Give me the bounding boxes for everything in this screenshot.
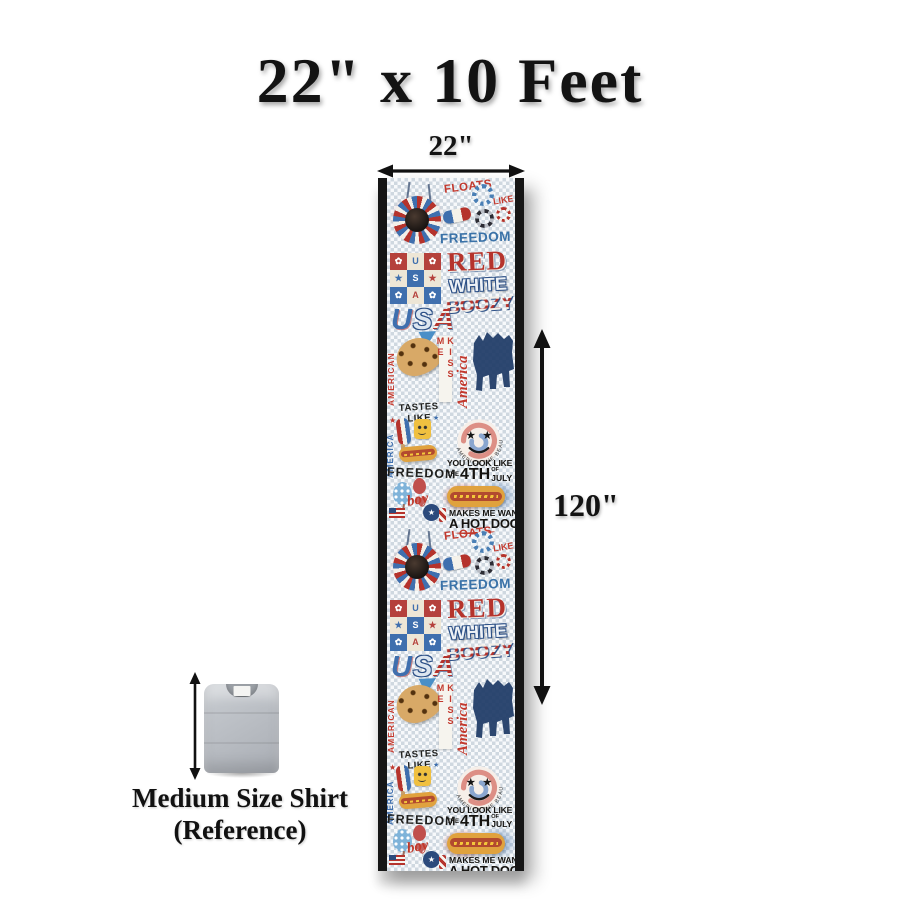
- a-hot-dog-text: A HOT DOG: [449, 863, 515, 872]
- shirt-body: [204, 684, 279, 773]
- checker-letter: U: [407, 253, 424, 270]
- star-icon: ★: [424, 270, 441, 287]
- usa-checker-block: ✿ U ✿ ★ S ★ ✿ A ✿: [390, 600, 441, 651]
- sunflower-center: [405, 555, 429, 579]
- like-text: LIKE: [492, 193, 514, 206]
- shirt-neck-label: [234, 686, 251, 696]
- reference-shirt-image: [202, 678, 282, 780]
- usa-letter: A: [433, 651, 455, 683]
- flag-sunflower-graphic: [389, 531, 447, 597]
- pool-float-icon: [496, 207, 511, 222]
- daisy-icon: ✿: [424, 600, 441, 617]
- product-size-diagram: 22" x 10 Feet 22" FLOATS LIKE: [0, 0, 900, 900]
- reference-caption-line2: (Reference): [99, 814, 381, 846]
- boozy-text: BOOZY: [445, 294, 514, 318]
- pool-float-icon: [496, 554, 511, 569]
- america-script-text: America: [455, 702, 472, 755]
- hot-dog-icon: [447, 833, 505, 854]
- daisy-icon: ✿: [390, 287, 407, 304]
- checker-letter: A: [407, 287, 424, 304]
- daisy-icon: ✿: [424, 287, 441, 304]
- the-text: THE: [447, 819, 459, 825]
- smiley-can-icon: [414, 419, 431, 439]
- sparkle-icon: ★: [433, 414, 439, 422]
- pool-float-icon: [475, 556, 494, 575]
- usa-letter: A: [433, 304, 455, 336]
- height-dimension-label: 120": [553, 487, 619, 524]
- american-vertical-text: AMERICAN: [387, 699, 396, 753]
- pool-float-icon: [475, 209, 494, 228]
- hot-dog-icon: [398, 444, 437, 462]
- fabric-roll: FLOATS LIKE FREEDOM ✿ U ✿ ★ S ★ ✿ A ✿: [378, 178, 524, 871]
- fourth-of-july-block: YOU LOOK LIKE THE 4TH OF JULY MAKES ME W…: [445, 458, 515, 524]
- usa-letter: U: [391, 304, 413, 336]
- fourth-of-july-block: YOU LOOK LIKE THE 4TH OF JULY MAKES ME W…: [445, 805, 515, 871]
- star-eye-icon: ★: [482, 430, 492, 442]
- height-arrow-icon: [529, 328, 555, 706]
- daisy-icon: ✿: [390, 634, 407, 651]
- checker-letter: U: [407, 600, 424, 617]
- usa-letter: U: [391, 651, 413, 683]
- kiss-me-text: KISS ME: [439, 683, 452, 749]
- star-eye-icon: ★: [482, 776, 492, 788]
- daisy-icon: ✿: [390, 600, 407, 617]
- us-flag-icon: [389, 855, 405, 865]
- star-icon: ★: [424, 617, 441, 634]
- smiley-can-icon: [414, 766, 431, 786]
- pool-float-icon: [472, 531, 494, 553]
- daisy-icon: ✿: [390, 253, 407, 270]
- usa-checker-block: ✿ U ✿ ★ S ★ ✿ A ✿: [390, 253, 441, 304]
- hot-dog-icon: [447, 486, 505, 507]
- fabric-roll-print: FLOATS LIKE FREEDOM ✿ U ✿ ★ S ★ ✿ A ✿: [387, 178, 515, 871]
- star-patch-icon: ★: [423, 504, 440, 521]
- sunflower-center: [405, 208, 429, 232]
- checker-letter: A: [407, 634, 424, 651]
- red-text: RED: [447, 593, 508, 622]
- pattern-tile: FLOATS LIKE FREEDOM ✿ U ✿ ★ S ★ ✿ A ✿: [387, 525, 515, 872]
- page-title: 22" x 10 Feet: [0, 44, 900, 118]
- star-patch-icon: ★: [423, 851, 440, 868]
- shirt-fold-line: [204, 712, 279, 714]
- boozy-text: BOOZY: [445, 640, 514, 664]
- red-text: RED: [447, 247, 508, 276]
- star-eye-icon: ★: [466, 776, 476, 788]
- wild-horses-silhouette: [471, 673, 515, 743]
- shirt-fold-line: [204, 742, 279, 744]
- like-text: LIKE: [492, 540, 514, 553]
- 4th-text: 4TH: [460, 467, 490, 483]
- width-dimension-label: 22": [378, 130, 524, 163]
- daisy-icon: ✿: [424, 634, 441, 651]
- wild-horses-silhouette: [471, 326, 515, 396]
- freedom-text: FREEDOM: [440, 229, 511, 246]
- kiss-me-text: KISS ME: [439, 336, 452, 402]
- freedom-text: FREEDOM: [440, 575, 511, 592]
- american-vertical-text: AMERICAN: [387, 352, 396, 406]
- the-text: THE: [447, 472, 459, 478]
- star-icon: ★: [390, 270, 407, 287]
- sparkle-icon: ★: [433, 761, 439, 769]
- checker-letter: S: [407, 617, 424, 634]
- america-script-text: America: [455, 356, 472, 409]
- us-flag-icon: [389, 508, 405, 518]
- white-text: WHITE: [449, 621, 508, 642]
- star-icon: ★: [390, 617, 407, 634]
- star-eye-icon: ★: [466, 430, 476, 442]
- reference-caption-line1: Medium Size Shirt: [99, 782, 381, 814]
- pattern-tile: FLOATS LIKE FREEDOM ✿ U ✿ ★ S ★ ✿ A ✿: [387, 178, 515, 525]
- daisy-icon: ✿: [424, 253, 441, 270]
- pool-float-icon: [472, 184, 494, 206]
- reference-caption: Medium Size Shirt (Reference): [99, 782, 381, 847]
- 4th-text: 4TH: [460, 814, 490, 830]
- flag-sunflower-graphic: [389, 184, 447, 250]
- hot-dog-icon: [398, 791, 437, 809]
- checker-letter: S: [407, 270, 424, 287]
- white-text: WHITE: [449, 274, 508, 295]
